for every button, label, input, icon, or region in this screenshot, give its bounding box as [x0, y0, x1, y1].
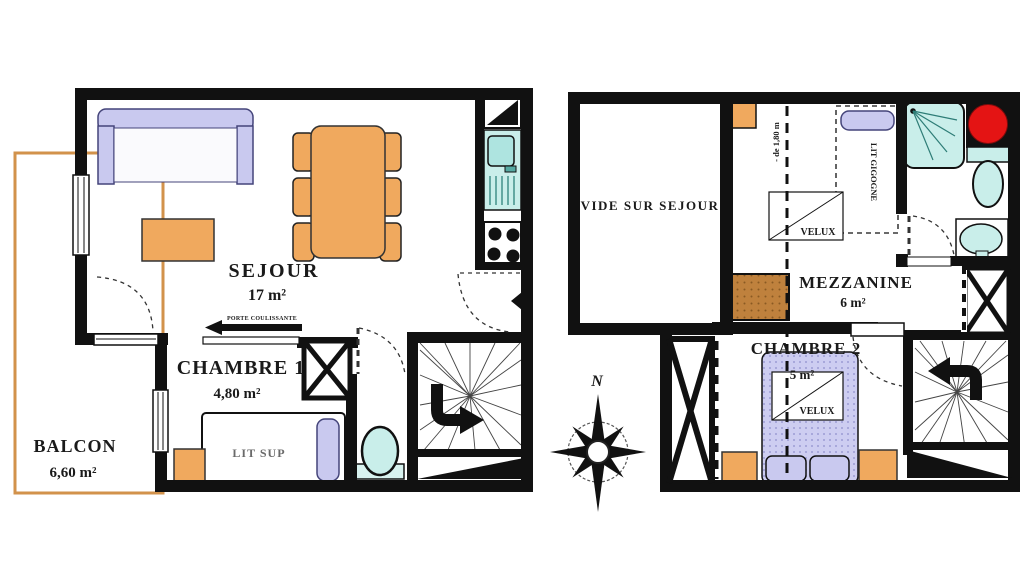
velux-label: VELUX [800, 227, 836, 238]
stairs-slope-mark [417, 458, 524, 479]
velux-label: VELUX [799, 406, 835, 417]
window [153, 390, 168, 452]
toilet [356, 427, 404, 479]
trundle-bed-label: LIT GIGOGNE [869, 143, 879, 202]
sliding-door [203, 320, 302, 344]
stairs-arrow-head [928, 357, 950, 385]
wardrobe [304, 341, 350, 398]
nightstand [859, 450, 897, 481]
toilet [967, 147, 1009, 207]
stairs-arrow-head [460, 406, 484, 434]
balcon-label: BALCON [33, 436, 116, 456]
chambre2-label: CHAMBRE 2 [751, 339, 862, 358]
bathroom-threshold [907, 257, 951, 266]
chambre1-label: CHAMBRE 1 [177, 357, 305, 379]
mezzanine-area: 6 m² [840, 295, 865, 310]
sliding-door-label: PORTE COULISSANTE [227, 316, 297, 322]
chambre2-door-leaf [851, 323, 904, 336]
wardrobe [961, 266, 1009, 336]
window [94, 334, 158, 345]
level1-plan: SEJOUR 17 m² CHAMBRE 1 4,80 m² BALCON 6,… [15, 88, 533, 493]
sejour-area: 17 m² [248, 287, 286, 304]
compass-rose: N [550, 373, 646, 512]
windows [73, 175, 168, 452]
height-note: - de 1,80 m [771, 122, 781, 162]
commode [724, 274, 789, 320]
coffee-table [142, 219, 214, 261]
wc-door-arc [359, 328, 405, 374]
nightstand [722, 452, 757, 483]
kitchen-units [484, 96, 521, 264]
sink [484, 130, 521, 210]
chambre2-area: 5 m² [790, 367, 815, 382]
water-heater [966, 100, 1010, 148]
wardrobe [669, 339, 712, 483]
bed-label: LIT SUP [232, 446, 285, 460]
sofa [98, 109, 253, 184]
bathroom-door-arc [913, 216, 954, 255]
sejour-label: SEJOUR [229, 260, 320, 282]
dining-table [311, 126, 385, 258]
compass-north-label: N [590, 373, 604, 390]
stairs-direction-arrow [437, 384, 460, 420]
vide-sur-sejour-label: VIDE SUR SEJOUR [581, 198, 720, 213]
stove [484, 222, 521, 264]
balcony-door-arc [97, 277, 153, 331]
stairs-slope-mark [907, 450, 1012, 478]
level2-plan: VIDE SUR SEJOUR MEZZANINE 6 m² CHAMBRE 2… [568, 92, 1020, 492]
washbasin [956, 219, 1008, 260]
sliding-door-arrow [205, 320, 222, 335]
window [73, 175, 89, 255]
balcon-area: 6,60 m² [50, 465, 97, 481]
shower [904, 102, 964, 168]
trundle-bed [836, 106, 898, 233]
chambre1-area: 4,80 m² [214, 386, 261, 402]
mezzanine-label: MEZZANINE [799, 273, 913, 292]
entry-door-arc [458, 274, 510, 332]
spiral-stairs [915, 341, 1008, 448]
floor-plan-image: SEJOUR 17 m² CHAMBRE 1 4,80 m² BALCON 6,… [0, 0, 1024, 575]
duplex-floor-plan: SEJOUR 17 m² CHAMBRE 1 4,80 m² BALCON 6,… [0, 0, 1024, 575]
